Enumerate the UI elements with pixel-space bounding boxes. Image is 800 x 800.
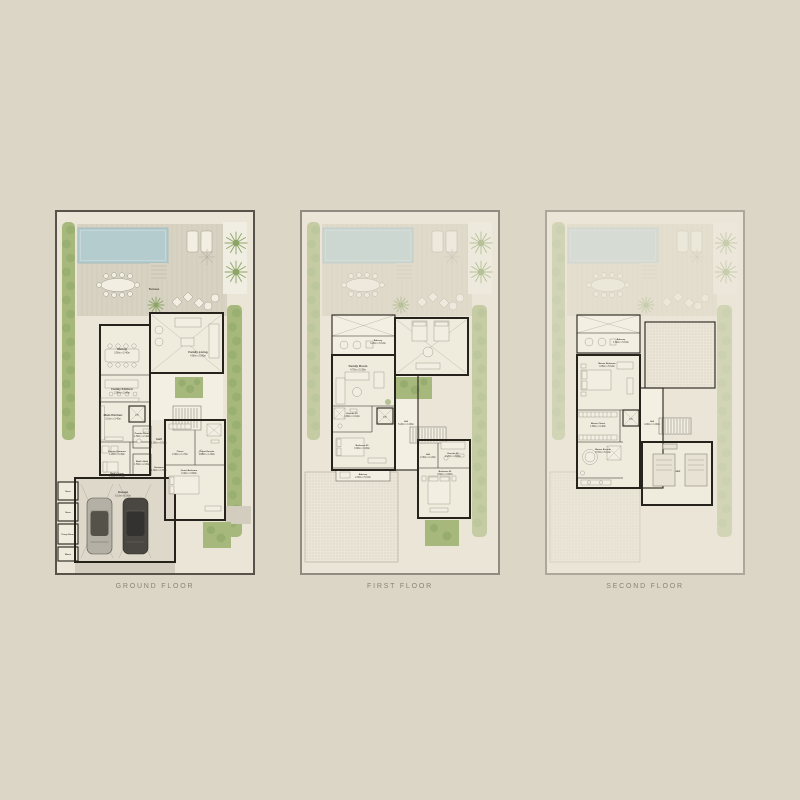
stairs-icon: [659, 418, 691, 434]
roof-terrace: [305, 472, 398, 562]
floor-caption: GROUND FLOOR: [55, 583, 255, 590]
room-dims: 1.80m x 5.00m: [151, 441, 167, 444]
balcony-area: [332, 315, 395, 355]
room-dims: 2.95m x 1.90m: [199, 453, 215, 456]
first-floor-drawing: Balcony 3.20m x 5.10m Family Room 4.75m …: [300, 210, 500, 575]
room-dims: 1.50m x 2.40m: [134, 435, 150, 438]
room-dims: 3.30m x 3.00m: [354, 447, 370, 450]
room-dims: 2.10m x 3.45m: [109, 475, 125, 478]
room-label: Dining: [117, 347, 126, 351]
sun-lounger: [201, 231, 212, 252]
green-roof-planter: [395, 377, 432, 399]
room-label: Family Room: [349, 364, 368, 368]
swimming-pool: [78, 228, 168, 263]
room-label: Hall: [156, 437, 162, 441]
room-dims: 2.70m x 5.10m: [595, 451, 611, 454]
brochure-page: Terrace Dining 3.50m x 5.40m Family Livi…: [0, 0, 800, 800]
room-label: MEP: [676, 471, 681, 473]
courtyard-planter: [175, 377, 203, 398]
outdoor-pouf: [701, 294, 709, 302]
car-icon: [123, 498, 148, 554]
umbrella-icon: [689, 249, 705, 265]
room-dims: 4.80m x 5.80m: [190, 354, 206, 357]
room-dims: 1.80m x 1.50m: [151, 469, 167, 472]
flat-roof: [645, 322, 715, 388]
room-dims: 2.20m x 2.45m: [445, 455, 461, 458]
room-label: Store: [65, 490, 71, 493]
floor-caption: SECOND FLOOR: [545, 583, 745, 590]
second-floor-drawing: Balcony 1.50m x 5.10m Master Bedroom 4.0…: [545, 210, 745, 575]
car-icon: [87, 498, 112, 554]
swimming-pool: [568, 228, 658, 263]
sun-lounger: [677, 231, 688, 252]
room-label: Lift: [383, 416, 387, 419]
room-dims: 1.50m x 5.10m: [613, 341, 629, 344]
room-dims: 4.75m x 5.35m: [350, 368, 366, 371]
floorplan-ground: Terrace Dining 3.50m x 5.40m Family Livi…: [55, 210, 255, 575]
room-dims: 3.20m x 5.10m: [370, 342, 386, 345]
room-dims: 2.45m x 1.20m: [420, 456, 436, 459]
balcony-area: [577, 315, 640, 353]
sun-lounger: [446, 231, 457, 252]
floor-caption: FIRST FLOOR: [300, 583, 500, 590]
guest-closet-rail: [169, 424, 191, 429]
outdoor-pouf: [211, 294, 219, 302]
sun-lounger: [432, 231, 443, 252]
ground-floor-drawing: Terrace Dining 3.50m x 5.40m Family Livi…: [55, 210, 255, 575]
outdoor-pouf: [694, 302, 702, 310]
room-dims: 3.40m x 3.80m: [181, 472, 197, 475]
room-dims: 4.00m x 1.80m: [644, 423, 660, 426]
room-label: Family Kitchen: [111, 387, 133, 391]
room-dims: 3.50m x 3.80m: [437, 473, 453, 476]
room-dims: 1.50m x 2.20m: [134, 463, 150, 466]
room-label: Main Kitchen: [104, 413, 123, 417]
room-label: Terrace: [149, 287, 160, 291]
room-dims: 5.20m x 1.80m: [398, 423, 414, 426]
room-dims: 1.20m x 3.45m: [109, 453, 125, 456]
maids-bed: [103, 462, 118, 472]
room-label: Lift: [629, 418, 633, 421]
outdoor-pouf: [456, 294, 464, 302]
room-label: Garage: [118, 490, 129, 494]
room-dims: 2.95m x 5.40m: [114, 391, 130, 394]
room-label: Lift: [135, 414, 139, 417]
room-dims: 6.10m x 6.00m: [115, 494, 131, 497]
room-dims: 4.05m x 5.10m: [599, 365, 615, 368]
floorplan-first: Balcony 3.20m x 5.10m Family Room 4.75m …: [300, 210, 500, 575]
floorplan-second: Balcony 1.50m x 5.10m Master Bedroom 4.0…: [545, 210, 745, 575]
green-roof-planter: [425, 520, 459, 546]
room-dims: 2.30m x 1.70m: [172, 453, 188, 456]
room-dims: 3.10m x 3.40m: [105, 417, 121, 420]
room-label: Waste: [65, 553, 72, 556]
room-dims: 1.80m x 3.10m: [344, 415, 360, 418]
room-dims: 1.80m x 3.40m: [590, 425, 606, 428]
umbrella-icon: [199, 249, 215, 265]
driveway: [75, 562, 175, 573]
outdoor-pouf: [204, 302, 212, 310]
room-label: Store: [65, 511, 71, 514]
swimming-pool: [323, 228, 413, 263]
sun-lounger: [691, 231, 702, 252]
room-label: Pump Room: [62, 534, 75, 536]
room-dims: 3.50m x 5.40m: [114, 351, 130, 354]
umbrella-icon: [444, 249, 460, 265]
sun-lounger: [187, 231, 198, 252]
garden-shrub: [203, 522, 231, 548]
entry-walk: [225, 506, 251, 524]
room-label: Family Living: [188, 350, 207, 354]
room-dims: 2.00m x 5.10m: [355, 476, 371, 479]
outdoor-pouf: [449, 302, 457, 310]
